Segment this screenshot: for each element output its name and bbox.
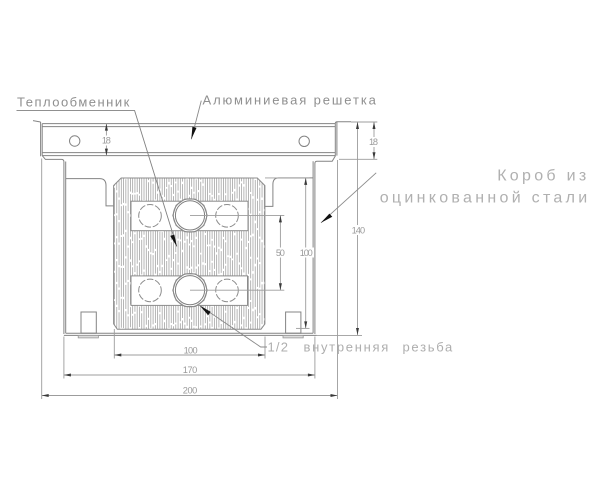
svg-text:140: 140 (352, 226, 366, 236)
svg-text:оцинкованной стали: оцинкованной стали (380, 190, 591, 207)
svg-text:18: 18 (369, 137, 378, 147)
svg-text:200: 200 (183, 386, 198, 396)
svg-text:1/2: 1/2 (268, 340, 290, 355)
svg-text:Алюминиевая решетка: Алюминиевая решетка (203, 93, 378, 108)
svg-text:50: 50 (276, 248, 285, 258)
svg-text:18: 18 (102, 135, 111, 145)
svg-text:внутренняя: внутренняя (304, 340, 390, 355)
svg-text:100: 100 (300, 248, 313, 258)
svg-text:170: 170 (183, 365, 198, 375)
svg-text:резьба: резьба (403, 340, 455, 355)
svg-text:Короб из: Короб из (497, 168, 589, 185)
svg-text:Теплообменник: Теплообменник (17, 94, 131, 109)
svg-text:100: 100 (184, 346, 198, 356)
